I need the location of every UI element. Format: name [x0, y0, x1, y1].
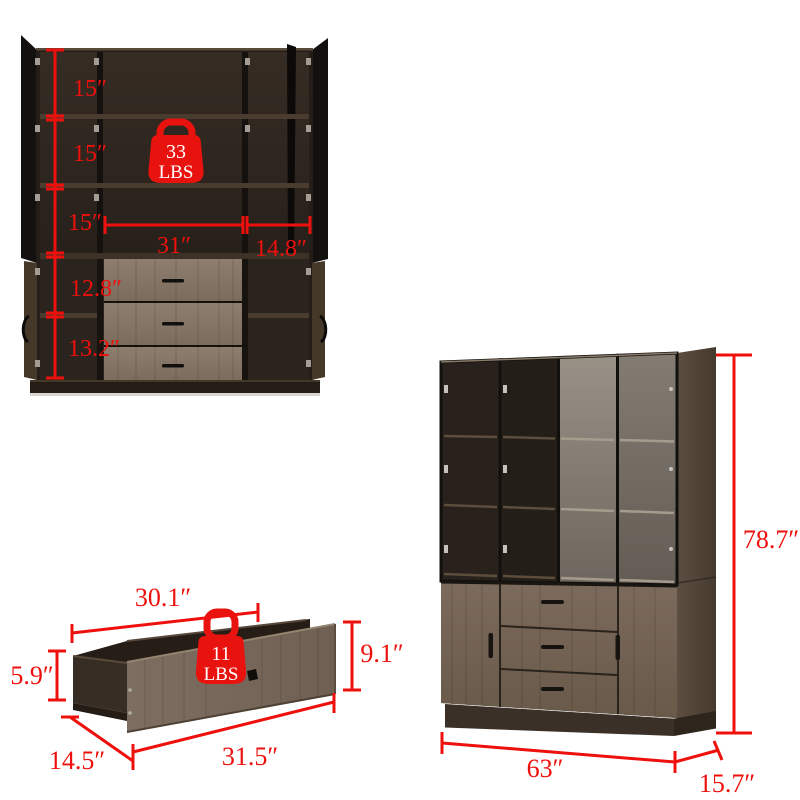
dim-width: 63″ — [527, 754, 564, 783]
dim-front-width: 31.5″ — [222, 742, 278, 771]
cabinet-side-panel — [677, 347, 716, 722]
open-door-top-right — [312, 38, 328, 263]
cabinet-top-edge — [36, 48, 313, 51]
lower-drawer-handle-2 — [541, 645, 564, 649]
dim-depth: 14.5″ — [49, 746, 105, 775]
glass-door-4 — [618, 353, 678, 585]
weight-badge-11lbs: 11 LBS — [196, 612, 246, 685]
depth-line — [675, 750, 719, 762]
screw-1 — [128, 688, 132, 692]
glass-door-1 — [441, 360, 500, 582]
drawer-gap-1 — [104, 301, 242, 303]
lower-left-door-handle — [489, 633, 494, 658]
drawer-handle-2 — [162, 322, 184, 326]
dim-box-height: 5.9″ — [10, 661, 53, 690]
lower-drawer-handle-3 — [541, 687, 564, 691]
badge-weight-value: 33 — [166, 141, 186, 163]
dim-depth: 15.7″ — [699, 769, 755, 798]
glass-door-2 — [500, 358, 559, 584]
badge-weight-value: 11 — [211, 643, 230, 665]
dim-inner-width: 30.1″ — [135, 583, 191, 612]
dim-height: 78.7″ — [743, 525, 799, 554]
diagram-svg: 33 LBS 15″ 15″ 15″ 12.8″ 13.2″ 31″ 14.8″ — [0, 0, 800, 800]
screw-2 — [128, 711, 132, 715]
glass-door-3 — [559, 355, 618, 584]
divider-right-bottom — [242, 259, 248, 380]
drawer-handle-1 — [162, 279, 184, 283]
floor-shadow — [30, 393, 320, 396]
dim-right-width: 14.8″ — [255, 236, 307, 262]
dim-middle-width: 31″ — [157, 233, 191, 259]
badge-weight-unit: LBS — [159, 162, 194, 183]
shelf-2 — [40, 183, 309, 188]
drawer-front-3 — [104, 347, 242, 380]
open-door-top-left — [21, 35, 37, 263]
lower-right-door-handle — [616, 635, 621, 660]
dim-top-section-1: 15″ — [73, 76, 107, 102]
bottom-shelf-right — [248, 313, 309, 318]
drawer-stack — [104, 259, 242, 380]
drawer-gap-2 — [104, 345, 242, 347]
plinth-edge — [30, 380, 320, 382]
lower-drawer-handle-1 — [541, 600, 564, 604]
shelf-1 — [40, 114, 309, 119]
dim-top-section-2: 15″ — [73, 141, 107, 167]
drawer-knob — [247, 669, 258, 681]
dim-front-height: 9.1″ — [360, 639, 403, 668]
product-dimension-diagram: 33 LBS 15″ 15″ 15″ 12.8″ 13.2″ 31″ 14.8″ — [0, 0, 800, 800]
dim-top-section-3: 15″ — [68, 210, 102, 236]
drawer-handle-3 — [162, 364, 184, 368]
dim-lower-section-2: 13.2″ — [68, 336, 120, 362]
closed-cabinet-view — [441, 347, 716, 736]
drawer-box-side — [73, 656, 127, 713]
badge-weight-unit: LBS — [204, 664, 239, 685]
dim-lower-section-1: 12.8″ — [70, 276, 122, 302]
